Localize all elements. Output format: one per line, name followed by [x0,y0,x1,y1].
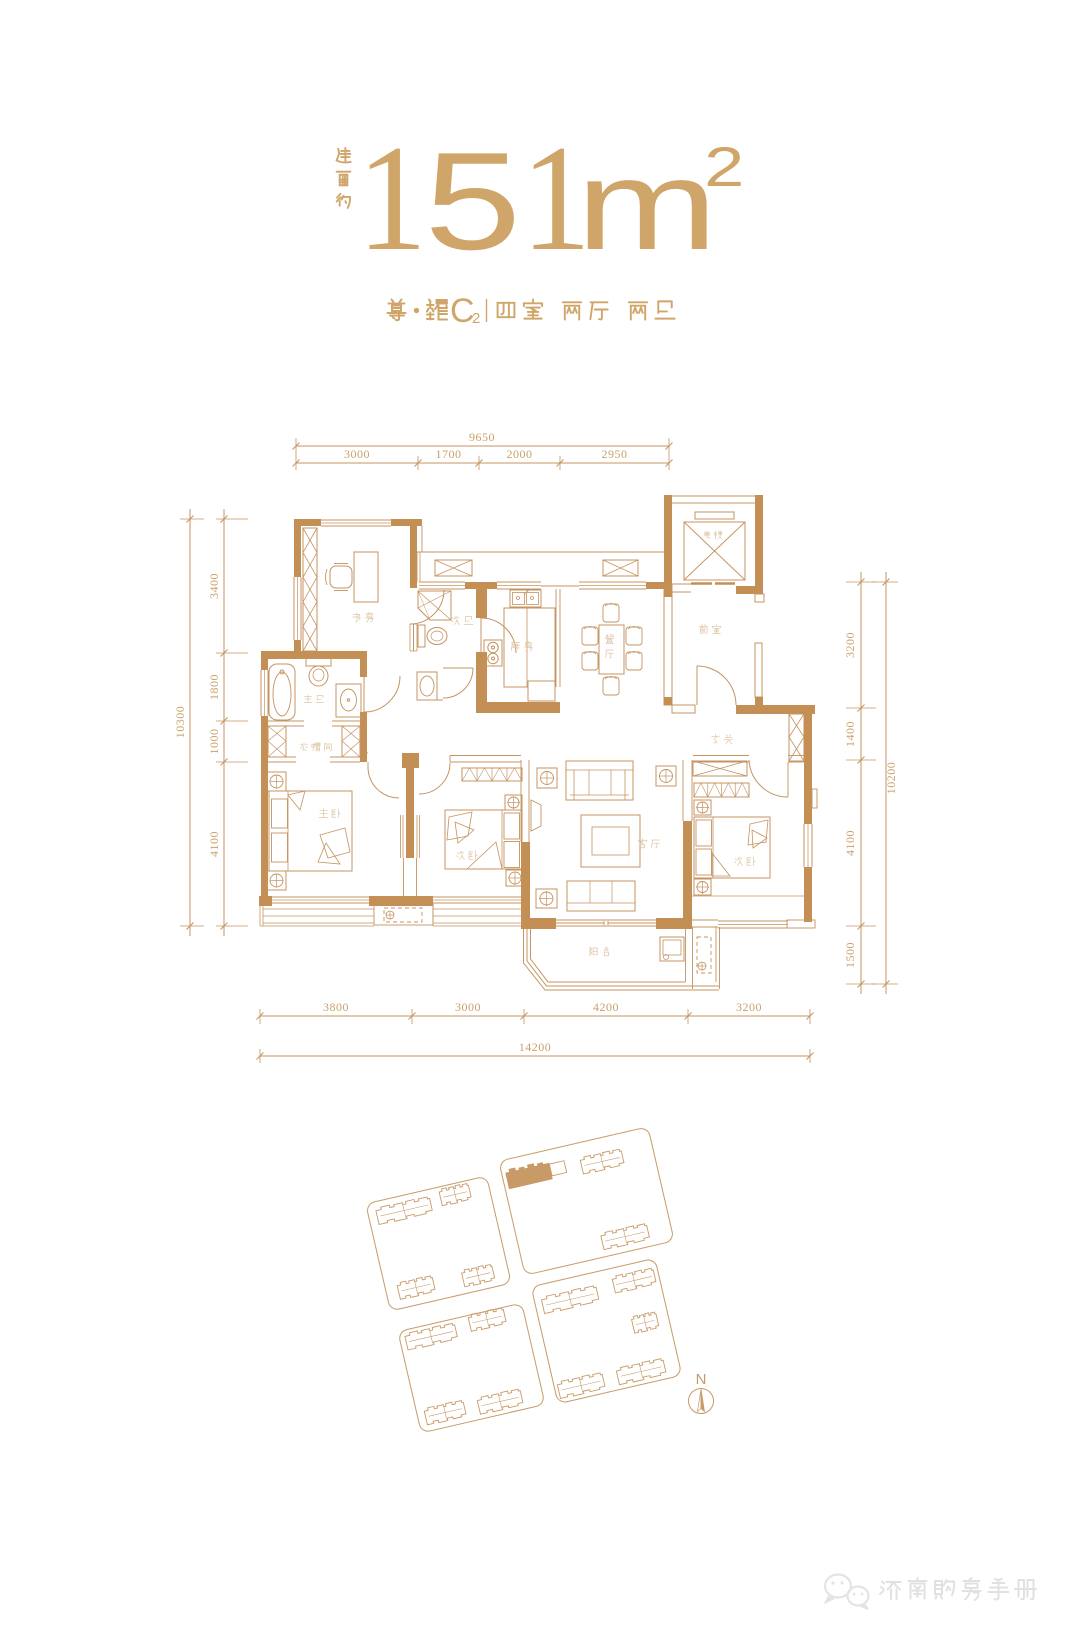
svg-text:1500: 1500 [843,942,857,968]
svg-text:4100: 4100 [843,830,857,856]
svg-text:1: 1 [357,114,427,282]
svg-text:2000: 2000 [507,447,533,461]
svg-text:9650: 9650 [469,430,495,444]
svg-text:5: 5 [424,124,521,279]
svg-text:3200: 3200 [736,1000,762,1014]
svg-text:10200: 10200 [884,762,898,795]
svg-text:C: C [450,292,475,330]
svg-text:3000: 3000 [455,1000,481,1014]
svg-text:1700: 1700 [436,447,462,461]
svg-text:1000: 1000 [207,729,221,755]
svg-text:N: N [696,1371,707,1388]
svg-text:2: 2 [704,135,744,198]
svg-text:4200: 4200 [593,1000,619,1014]
svg-text:3200: 3200 [843,632,857,658]
svg-text:1800: 1800 [207,674,221,700]
svg-text:3800: 3800 [323,1000,349,1014]
svg-text:m: m [576,134,718,277]
svg-text:2: 2 [472,310,480,327]
svg-text:3400: 3400 [207,573,221,599]
svg-text:10300: 10300 [173,706,187,739]
svg-text:1400: 1400 [843,721,857,747]
svg-text:3000: 3000 [344,447,370,461]
svg-text:2950: 2950 [602,447,628,461]
svg-text:14200: 14200 [519,1040,552,1054]
svg-text:4100: 4100 [207,831,221,857]
